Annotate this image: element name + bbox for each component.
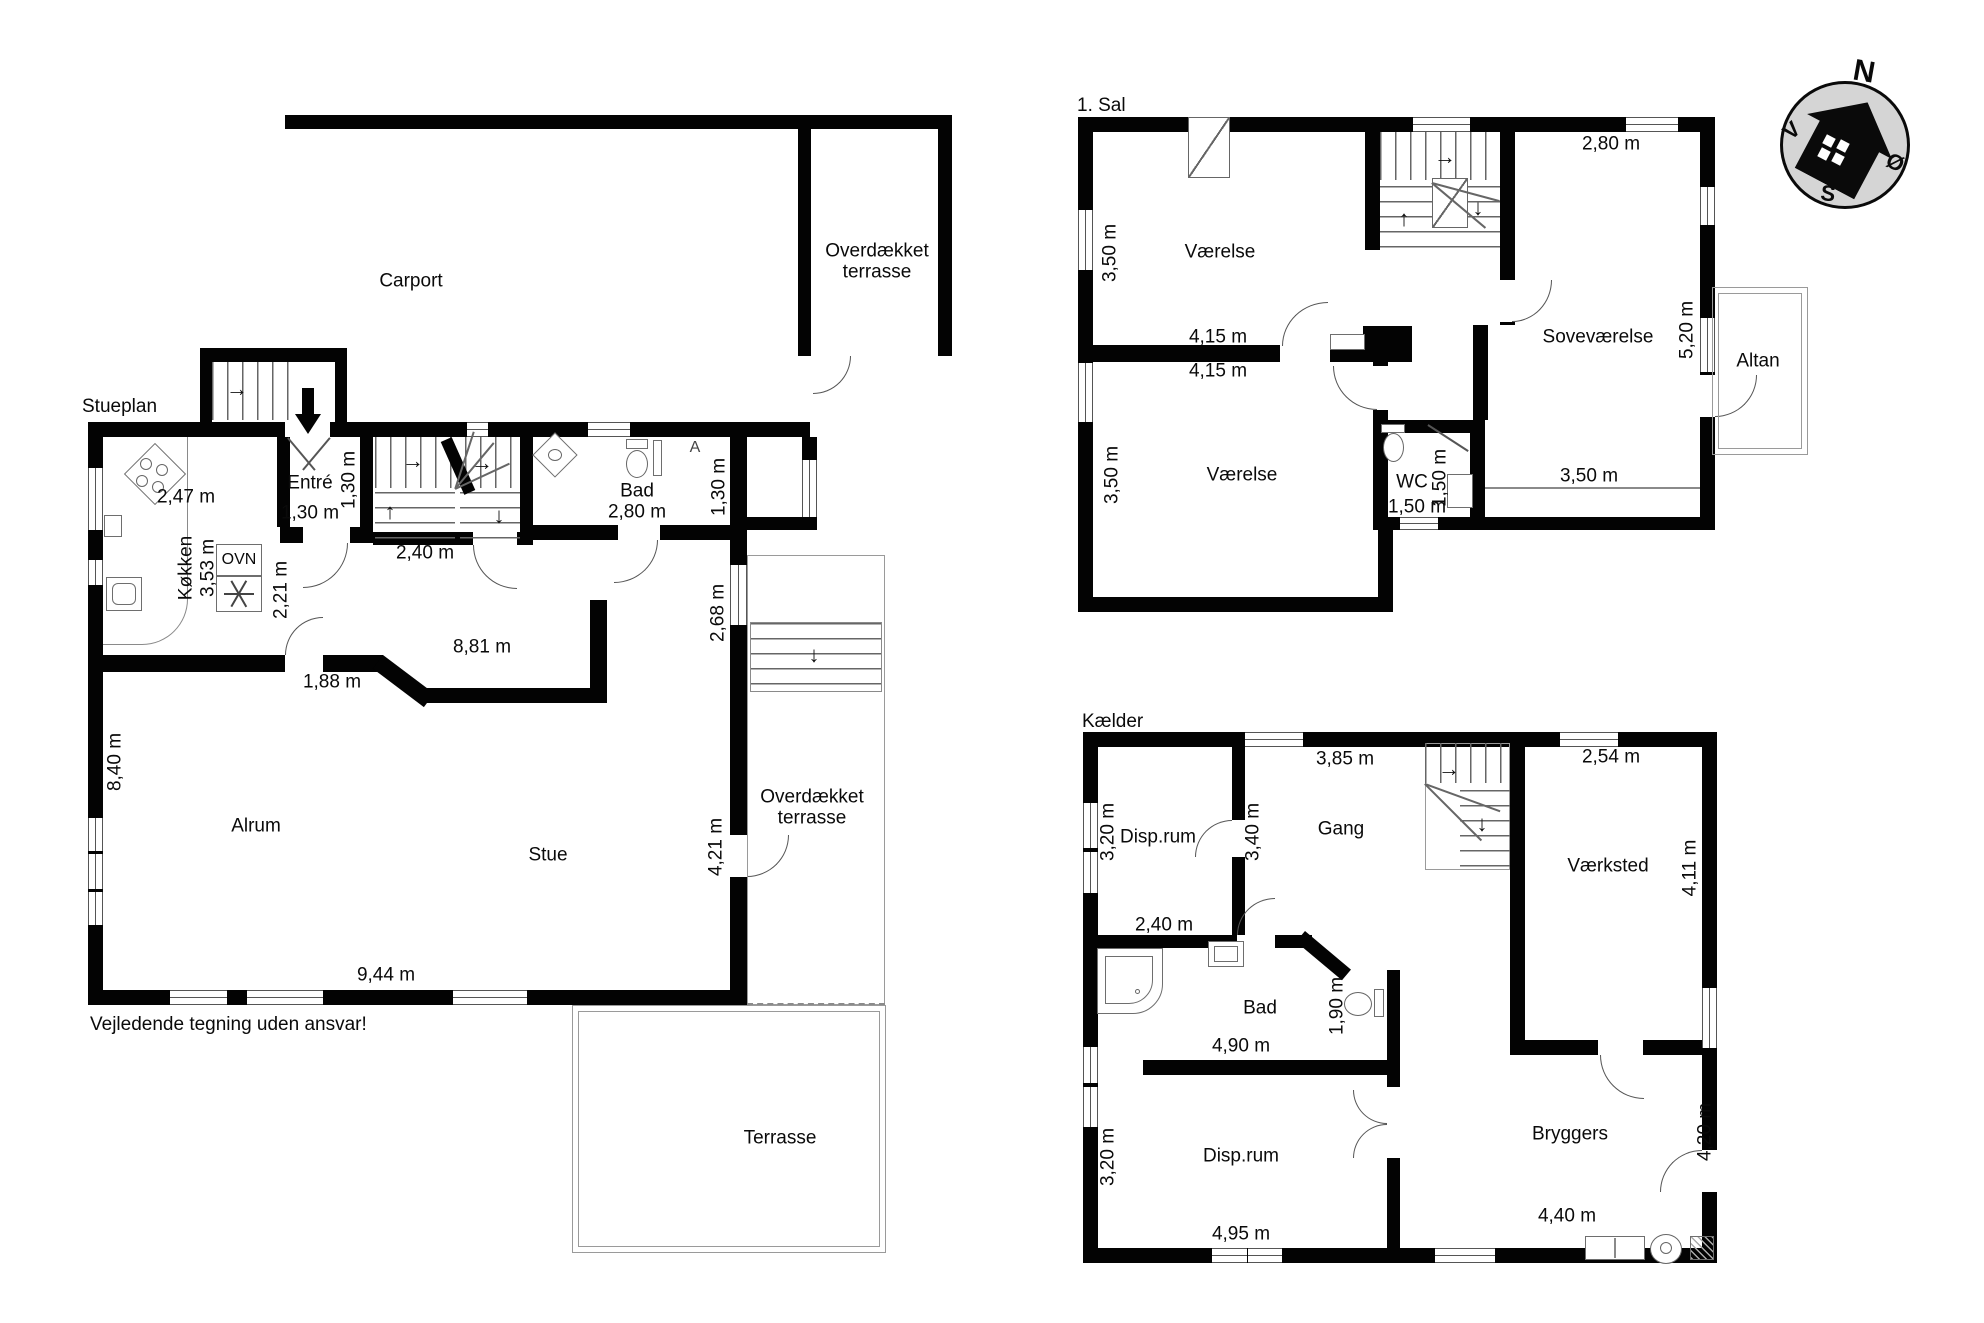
- floor-plan-drawing: →: [0, 0, 1984, 1323]
- door-opening: [618, 525, 660, 540]
- wall: [1473, 325, 1488, 420]
- door-opening: [1598, 1040, 1643, 1055]
- wall: [1083, 935, 1312, 948]
- down-arrow-icon: ↓: [1473, 195, 1484, 221]
- double-door-arc: [1353, 1090, 1387, 1124]
- room-label-altan: Altan: [1736, 350, 1779, 371]
- dim-bryggers-width: 4,40 m: [1538, 1205, 1596, 1226]
- dim-kitchen-length: 3,53 m: [197, 539, 218, 597]
- toilet-icon: [626, 450, 648, 478]
- wall: [1078, 597, 1393, 612]
- wall: [798, 128, 811, 356]
- wall-fixture-icon: [104, 515, 122, 537]
- window: [1248, 1248, 1282, 1263]
- wall: [1296, 931, 1351, 980]
- window: [88, 468, 103, 530]
- door-arc: [813, 356, 851, 394]
- floor-title: Stueplan: [82, 396, 157, 417]
- dim-kitchen-opening: 1,88 m: [303, 671, 361, 692]
- room-label-covered-terrace: Overdækket terrasse: [814, 241, 940, 284]
- entry-arrow-icon: [295, 414, 321, 434]
- down-arrow-icon: ↓: [1477, 811, 1488, 837]
- door-arc: [1282, 302, 1328, 346]
- dim-west-length: 8,40 m: [104, 733, 125, 791]
- sink-icon: [1447, 474, 1473, 508]
- room-label-terrasse: Terrasse: [744, 1127, 817, 1148]
- dim-entre-width: 1,30 m: [281, 502, 339, 523]
- room-label-carport: Carport: [379, 270, 442, 291]
- disclaimer-text: Vejledende tegning uden ansvar!: [90, 1014, 367, 1035]
- room-label-entre: Entré: [287, 472, 332, 493]
- right-arrow-icon: →: [1434, 144, 1456, 170]
- hob-icon: [156, 464, 168, 476]
- window: [1626, 117, 1678, 132]
- door-arc: [285, 617, 323, 655]
- window: [467, 422, 488, 437]
- label-oven: OVN: [222, 551, 257, 569]
- up-arrow-icon: ↑: [1399, 206, 1410, 232]
- sink-icon: [112, 583, 136, 605]
- dim-mid-top: 4,15 m: [1189, 326, 1247, 347]
- dim-sw-depth: 3,50 m: [1101, 446, 1122, 504]
- window: [1400, 517, 1438, 530]
- dim-disprum-n-width: 2,40 m: [1135, 914, 1193, 935]
- room-label-disprum-n: Disp.rum: [1120, 826, 1196, 847]
- dim-kitchen-width: 2,47 m: [157, 486, 215, 507]
- right-arrow-icon: →: [471, 450, 493, 476]
- drain-icon: [1135, 989, 1140, 994]
- hob-icon: [140, 458, 152, 470]
- dim-disprum-s-width: 4,95 m: [1212, 1223, 1270, 1244]
- knee-wall-line: [1485, 487, 1700, 489]
- laundry-sink-icon: [1614, 1238, 1616, 1258]
- window: [1245, 732, 1303, 747]
- right-arrow-icon: →: [402, 448, 424, 474]
- room-label-wc: WC: [1396, 471, 1428, 492]
- dim-stairs-width: 2,40 m: [396, 542, 454, 563]
- dim-bad-width: 4,90 m: [1212, 1035, 1270, 1056]
- dim-vaerksted-width: 2,54 m: [1582, 746, 1640, 767]
- entry-arrow-icon: [302, 388, 314, 416]
- dim-hall-width: 3,85 m: [1316, 748, 1374, 769]
- room-label-bad: Bad: [620, 480, 654, 501]
- wall: [1365, 117, 1380, 250]
- dim-nw-depth: 3,50 m: [1099, 224, 1120, 282]
- room-label-vaerelse-sw: Værelse: [1207, 464, 1278, 485]
- dim-bryggers-depth: 4,20 m: [1694, 1103, 1715, 1161]
- dim-east-width: 2,68 m: [707, 584, 728, 642]
- wall: [1510, 747, 1525, 1053]
- door-opening: [1280, 345, 1330, 362]
- wall: [1083, 732, 1717, 747]
- stairs: [460, 492, 520, 545]
- dim-opening-width: 8,81 m: [453, 636, 511, 657]
- down-arrow-icon: ↓: [494, 503, 505, 529]
- room-label-sovevaerelse: Soveværelse: [1543, 326, 1654, 347]
- window: [1700, 187, 1715, 225]
- door-arc: [473, 545, 517, 589]
- dim-terrace-door: 4,21 m: [705, 818, 726, 876]
- dim-hall-width: 2,21 m: [270, 561, 291, 619]
- wall: [590, 600, 607, 703]
- dim-bad-width: 2,80 m: [608, 501, 666, 522]
- sink-icon: [1214, 946, 1238, 962]
- door-opening: [303, 527, 350, 543]
- double-door-arc: [1353, 1124, 1387, 1158]
- wall: [335, 362, 347, 422]
- window: [1078, 363, 1093, 422]
- wall: [1378, 530, 1393, 612]
- dim-bedroom-south: 3,50 m: [1560, 465, 1618, 486]
- dim-hall-depth: 3,40 m: [1242, 803, 1263, 861]
- door-leaf: [302, 437, 330, 470]
- door-arc: [1600, 1055, 1644, 1099]
- window: [453, 990, 527, 1005]
- room-label-vaerksted: Værksted: [1567, 855, 1648, 876]
- wall: [200, 348, 347, 362]
- right-arrow-icon: →: [226, 376, 248, 402]
- toilet-icon: [1383, 433, 1404, 462]
- door-opening: [285, 655, 323, 672]
- room-label-bad: Bad: [1243, 997, 1277, 1018]
- toilet-icon: [1374, 989, 1384, 1017]
- wall: [1078, 117, 1715, 132]
- covered-terrace-outline: [747, 555, 885, 1005]
- dim-disprum-s-depth: 3,20 m: [1097, 1128, 1118, 1186]
- dim-disprum-n-depth: 3,20 m: [1097, 803, 1118, 861]
- toilet-icon: [1381, 424, 1405, 433]
- wall: [747, 517, 817, 530]
- shelf-niche: [1330, 334, 1365, 350]
- wall: [1143, 1060, 1400, 1075]
- skylight-icon: [1188, 117, 1230, 178]
- door-opening: [730, 835, 747, 877]
- wall: [360, 422, 373, 527]
- door-arc: [1512, 280, 1552, 322]
- window: [802, 460, 817, 517]
- wall: [103, 655, 383, 672]
- window: [730, 595, 747, 625]
- door-arc: [614, 540, 658, 583]
- window: [588, 422, 630, 437]
- laundry-basket-icon: [1690, 1236, 1714, 1260]
- dim-wc-depth: 1,50 m: [1429, 449, 1450, 507]
- dim-bad-depth: 1,90 m: [1326, 977, 1347, 1035]
- wall: [730, 437, 747, 1005]
- up-arrow-icon: ↑: [385, 499, 396, 525]
- toilet-icon: [1344, 992, 1372, 1016]
- floor-title: Kælder: [1082, 711, 1143, 732]
- room-label-vaerelse-nw: Værelse: [1185, 241, 1256, 262]
- door-arc: [303, 543, 348, 588]
- wall: [285, 115, 952, 129]
- room-label-kitchen: Køkken: [175, 536, 196, 600]
- room-label-stue: Stue: [528, 844, 567, 865]
- wall: [1363, 326, 1412, 362]
- washer-icon: [1660, 1242, 1672, 1254]
- window: [1702, 988, 1717, 1048]
- dim-vaerksted-depth: 4,11 m: [1679, 840, 1700, 897]
- freezer-icon: [224, 579, 254, 609]
- window: [88, 818, 103, 851]
- window: [88, 854, 103, 889]
- dim-mid-bottom: 4,15 m: [1189, 360, 1247, 381]
- room-label-alrum: Alrum: [231, 815, 281, 836]
- window: [170, 990, 227, 1005]
- wall: [423, 688, 607, 703]
- hob-icon: [136, 475, 148, 487]
- window: [1083, 852, 1098, 893]
- window: [1413, 117, 1470, 132]
- window: [1083, 1047, 1098, 1083]
- shower-icon: [1105, 956, 1153, 1004]
- room-label-disprum-s: Disp.rum: [1203, 1145, 1279, 1166]
- window: [1083, 1087, 1098, 1127]
- toilet-icon: [626, 439, 648, 449]
- radiator-icon: [653, 440, 662, 476]
- door-leaf: [287, 437, 315, 470]
- room-label-bryggers: Bryggers: [1532, 1123, 1608, 1144]
- window: [1083, 803, 1098, 848]
- terrace-outline: [578, 1011, 880, 1247]
- wall: [938, 128, 952, 356]
- window: [88, 892, 103, 925]
- window: [1078, 210, 1093, 270]
- dim-entre-depth: 1,30 m: [338, 451, 359, 509]
- compass-north: N: [1850, 54, 1877, 91]
- door-arc: [1195, 820, 1232, 857]
- drain-icon: A: [690, 439, 701, 457]
- window: [1435, 1248, 1495, 1263]
- dim-bedroom-width: 2,80 m: [1582, 133, 1640, 154]
- window: [730, 565, 747, 595]
- room-label-covered-terrace-e: Overdækket terrasse: [749, 787, 875, 830]
- room-label-gang: Gang: [1318, 818, 1364, 839]
- window: [247, 990, 323, 1005]
- door-arc: [1333, 366, 1377, 410]
- right-arrow-icon: →: [1438, 756, 1460, 782]
- dim-bedroom-length: 5,20 m: [1676, 301, 1697, 359]
- dim-bad-depth: 1,30 m: [708, 458, 729, 516]
- corner-sink-icon: [548, 449, 562, 461]
- dim-south-length: 9,44 m: [357, 964, 415, 985]
- window: [88, 560, 103, 585]
- stairs: [212, 362, 292, 420]
- wall: [88, 422, 810, 437]
- window: [1212, 1248, 1247, 1263]
- floor-title: 1. Sal: [1077, 95, 1126, 116]
- window: [1560, 732, 1618, 747]
- door-opening: [1387, 1087, 1400, 1158]
- wall: [200, 362, 212, 422]
